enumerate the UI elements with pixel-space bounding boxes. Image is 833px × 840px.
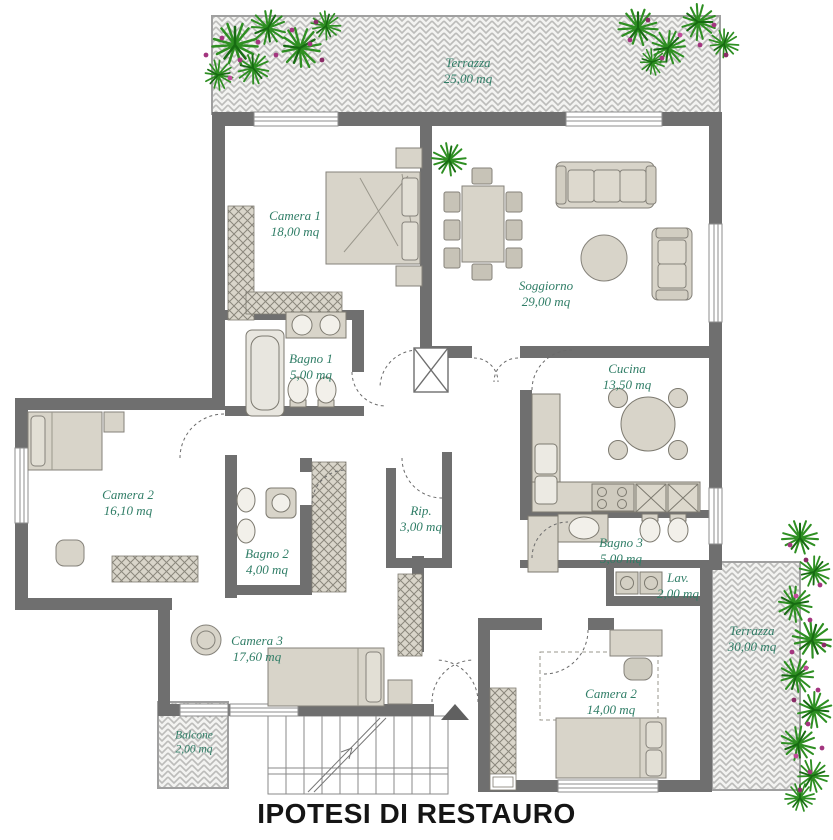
dining-table — [462, 186, 504, 262]
sink — [320, 315, 340, 335]
sink — [569, 517, 599, 539]
entrance-triangle — [441, 704, 469, 720]
shaft-box — [414, 348, 448, 392]
floorplan-page: Terrazza 25,00 mq Camera 1 18,00 mq Sogg… — [0, 0, 833, 840]
camera2bis-furniture — [540, 630, 666, 778]
window-cucina-right — [709, 488, 722, 544]
staircase — [268, 716, 448, 794]
bidet — [668, 518, 688, 542]
nightstand — [396, 148, 422, 168]
kitchen-sink — [535, 444, 557, 474]
armchair — [56, 540, 84, 566]
window-camera2-left — [15, 448, 28, 523]
kitchen-table — [621, 397, 675, 451]
washing-machine — [640, 572, 662, 594]
wardrobe-camera2 — [112, 556, 198, 582]
window-balcone-door — [180, 704, 228, 716]
window-camera2bis-bottom — [558, 780, 658, 792]
desk — [610, 630, 662, 656]
sink — [272, 494, 290, 512]
plant-soggiorno — [429, 141, 468, 178]
camera1-furniture — [326, 148, 422, 286]
window-soggiorno-top — [566, 112, 662, 126]
kitchen-sink — [535, 476, 557, 504]
bidet — [316, 377, 336, 403]
wardrobe-camera1-horizontal — [246, 292, 342, 314]
soggiorno-furniture — [444, 162, 692, 300]
wardrobe-camera2bis — [490, 688, 516, 774]
wardrobe-hall — [398, 574, 422, 656]
camera2-furniture — [28, 412, 124, 566]
nightstand — [104, 412, 124, 432]
floorplan-drawing — [0, 0, 833, 840]
toilet — [640, 518, 660, 542]
nightstand — [388, 680, 412, 704]
toilet — [237, 519, 255, 543]
bagno1-fixtures — [246, 312, 346, 416]
bidet — [237, 488, 255, 512]
washing-machine — [616, 572, 638, 594]
bagno2-fixtures — [237, 488, 296, 543]
wardrobe-corridor — [312, 462, 346, 592]
sink — [292, 315, 312, 335]
nightstand — [396, 266, 422, 286]
plan-title: IPOTESI DI RESTAURO — [0, 798, 833, 830]
toilet — [288, 377, 308, 403]
lav-fixtures — [616, 572, 662, 594]
cucina-furniture — [532, 389, 700, 513]
window-camera1 — [254, 112, 338, 126]
round-rug — [581, 235, 627, 281]
armchair — [191, 625, 221, 655]
camera3-furniture — [191, 625, 412, 706]
window-soggiorno-right — [709, 224, 722, 322]
chair — [624, 658, 652, 680]
